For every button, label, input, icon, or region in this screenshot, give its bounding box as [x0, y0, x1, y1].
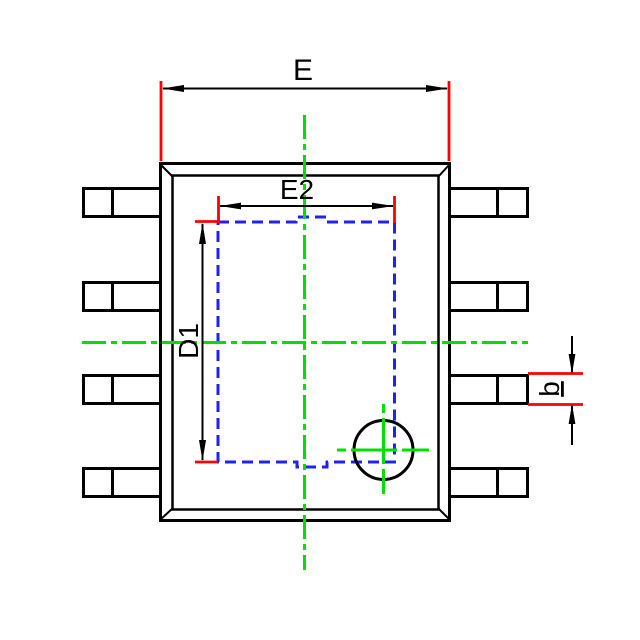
arrowhead-right-icon: [426, 85, 448, 92]
dimension-label-D1: D1: [173, 323, 204, 359]
pin-left-3: [84, 376, 161, 404]
pin-right-2: [450, 283, 528, 311]
pin-left-4: [84, 469, 161, 497]
pin-left-1: [84, 189, 161, 217]
soic8-package-outline-drawing: E E2 D1 b: [0, 0, 640, 640]
pin-right-4: [450, 469, 528, 497]
dimension-label-E: E: [293, 54, 313, 87]
pin-right-3: [450, 376, 528, 404]
dimension-label-b: b: [534, 381, 565, 397]
pin-right-1: [450, 189, 528, 217]
dimension-b: b: [528, 336, 583, 445]
dimension-label-E2: E2: [280, 174, 314, 205]
arrowhead-down-icon: [569, 354, 576, 374]
arrowhead-left-icon: [162, 85, 184, 92]
drawing-canvas: E E2 D1 b: [0, 0, 640, 640]
arrowhead-up-icon: [569, 404, 576, 424]
pin-left-2: [84, 283, 161, 311]
